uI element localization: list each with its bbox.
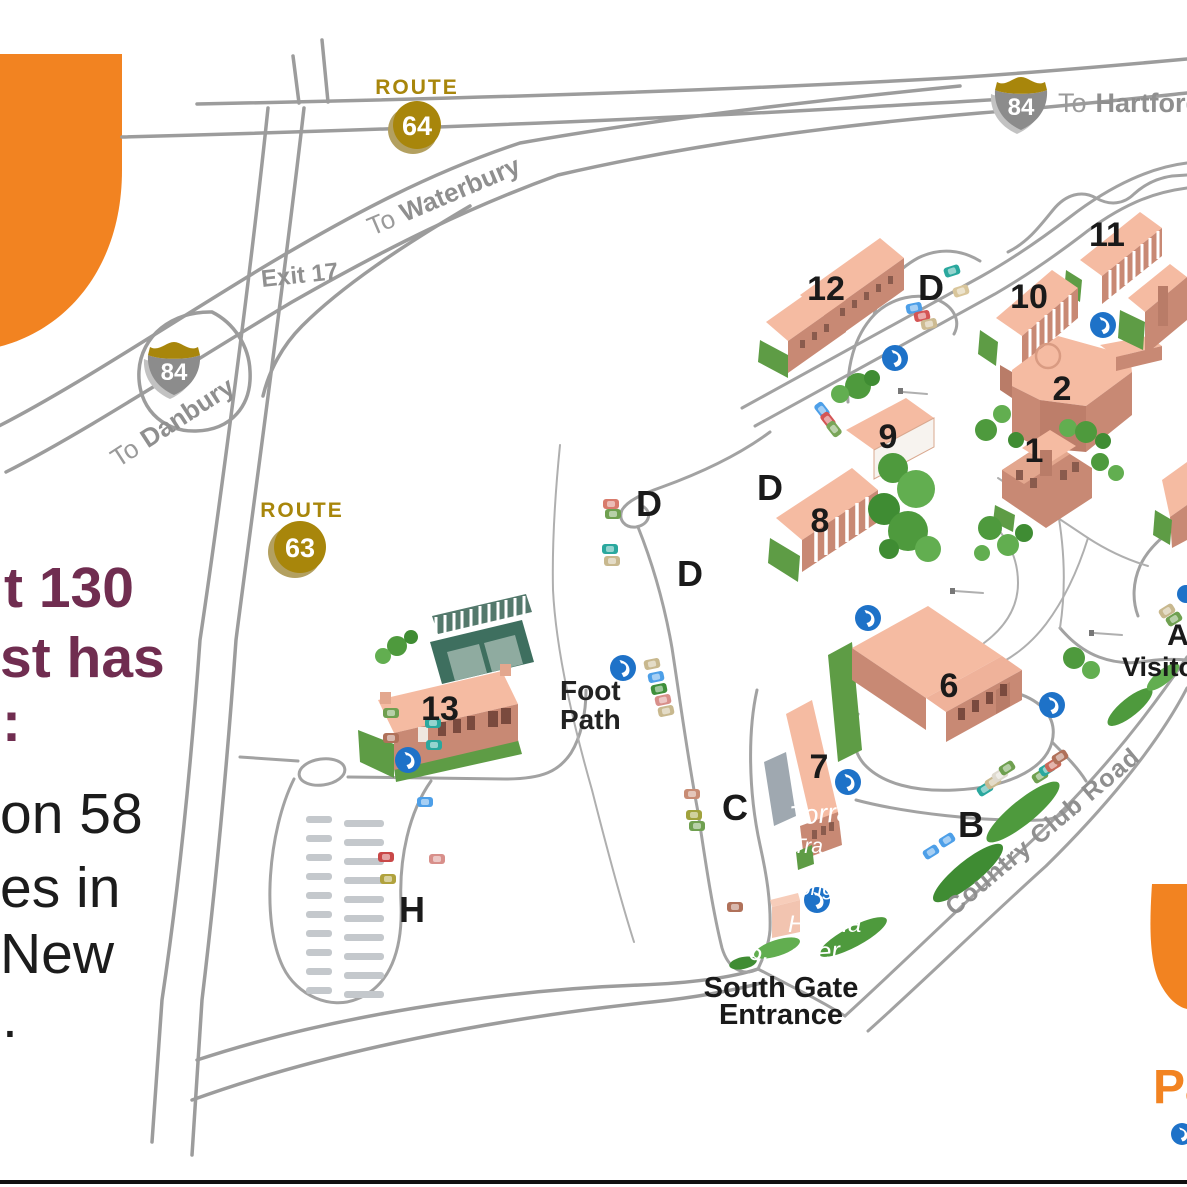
parking-letter-d3: D	[636, 483, 662, 524]
phone-icon	[1177, 585, 1187, 603]
white-annotation: Torra	[788, 797, 852, 831]
route-word: ROUTE	[375, 76, 459, 99]
parking-stripes-h	[306, 816, 384, 998]
visitor-lot-word: Visito	[1122, 652, 1187, 682]
foot-path-label: Foot Path	[560, 675, 621, 735]
phone-icon	[855, 605, 881, 631]
roundabout	[297, 756, 346, 788]
visitor-lot-letter: A	[1167, 619, 1187, 652]
bottom-border-line	[0, 1180, 1187, 1184]
parking-letter-d4: D	[677, 553, 703, 594]
car-icon	[943, 264, 961, 278]
car-icon	[938, 832, 957, 849]
marker	[950, 588, 955, 594]
cropped-text-fragment: on 58	[0, 786, 143, 843]
orange-partial-word: Pa	[1153, 1061, 1187, 1114]
building-partial-east-2	[1153, 462, 1187, 548]
foot-path-line1: Foot	[560, 675, 621, 706]
white-annotation: Hei Ha	[788, 911, 861, 938]
car-icon	[380, 874, 396, 884]
i84-shield-north: 84	[991, 77, 1047, 134]
route-63-badge: ROUTE 63	[260, 499, 344, 578]
white-annotation: ever	[789, 935, 842, 968]
car-icon	[686, 810, 702, 820]
building-6	[828, 606, 1022, 762]
white-annotation: ong	[799, 877, 834, 900]
to-hartford-label: ToHartford	[1058, 88, 1187, 118]
car-icon	[952, 284, 970, 298]
to-word: To	[105, 433, 144, 473]
building-number-1: 1	[1025, 432, 1044, 470]
building-number-2: 2	[1053, 370, 1072, 408]
parking-letter-h: H	[399, 889, 425, 930]
phone-icon	[1171, 1123, 1187, 1145]
car-icon	[383, 733, 399, 743]
parking-letter-c: C	[722, 787, 748, 828]
car-icon	[605, 509, 621, 519]
route-number: 63	[285, 533, 315, 563]
cropped-text-fragment: :	[2, 694, 21, 751]
parking-letter-b: B	[958, 804, 984, 845]
building-number-13: 13	[421, 690, 459, 728]
building-number-11: 11	[1089, 216, 1125, 254]
foot-path-line2: Path	[560, 704, 621, 735]
cropped-text-fragment: es in	[0, 860, 120, 917]
phone-icon	[1039, 692, 1065, 718]
tennis-courts	[430, 594, 534, 684]
orange-logo-shape-bottom-right	[1150, 884, 1187, 1009]
phone-icon	[395, 747, 421, 773]
parking-letter-d1: D	[918, 267, 944, 308]
road-route63-west	[152, 108, 268, 1142]
white-annotation: 6.	[748, 936, 770, 966]
car-icon	[417, 797, 433, 807]
road-stub	[293, 56, 299, 103]
highway-roads	[0, 40, 1187, 1155]
marker	[898, 388, 903, 394]
interstate-number: 84	[1008, 94, 1035, 121]
road-west-of-7	[751, 690, 771, 969]
car-icon	[922, 844, 941, 861]
campus-map: ROUTE 64 ROUTE 63 84 ToHartford 84 ToDan…	[0, 0, 1187, 1187]
car-icon	[603, 499, 619, 509]
path-stub	[1094, 633, 1122, 635]
map-canvas: ROUTE 64 ROUTE 63 84 ToHartford 84 ToDan…	[0, 0, 1187, 1187]
to-word: To	[1058, 88, 1087, 118]
path-stub	[903, 392, 927, 394]
road-lot-h-access	[240, 757, 298, 761]
cropped-text-fragment: .	[2, 990, 18, 1047]
car-icon	[602, 544, 618, 554]
car-icon	[654, 693, 672, 706]
building-number-8: 8	[811, 502, 830, 540]
south-gate-label: South Gate Entrance	[704, 972, 859, 1031]
route-64-badge: ROUTE 64	[375, 76, 459, 154]
city-word: Hartford	[1096, 88, 1187, 118]
route-number: 64	[402, 111, 432, 141]
car-icon	[689, 821, 705, 831]
car-icon	[647, 670, 665, 683]
car-icon	[643, 657, 661, 670]
path-stub	[955, 591, 983, 593]
cropped-text-fragment: New	[0, 926, 114, 983]
south-gate-line2: Entrance	[719, 999, 843, 1031]
car-icon	[378, 852, 394, 862]
building-number-10: 10	[1010, 278, 1048, 316]
building-number-6: 6	[940, 667, 959, 705]
car-icon	[727, 902, 743, 912]
car-icon	[429, 854, 445, 864]
interstate-number: 84	[161, 359, 188, 386]
cropped-text-fragment: st has	[0, 630, 165, 687]
phone-icon	[1090, 312, 1116, 338]
phone-icon	[835, 769, 861, 795]
car-icon	[426, 740, 442, 750]
road-southgate-approach	[197, 969, 758, 1060]
car-icon	[657, 704, 675, 717]
car-icon	[650, 682, 668, 695]
orange-corner-top-left	[0, 54, 122, 348]
car-icon	[684, 789, 700, 799]
marker	[1089, 630, 1094, 636]
cropped-text-fragment: t 130	[4, 560, 134, 617]
building-number-12: 12	[807, 270, 845, 308]
building-number-7: 7	[810, 748, 829, 786]
car-icon	[604, 556, 620, 566]
route-word: ROUTE	[260, 499, 344, 522]
parking-letter-d2: D	[757, 467, 783, 508]
white-annotation: Tra	[793, 835, 823, 858]
phone-icon	[882, 345, 908, 371]
car-icon	[383, 708, 399, 718]
road-stub	[322, 40, 328, 102]
building-number-9: 9	[879, 418, 898, 456]
